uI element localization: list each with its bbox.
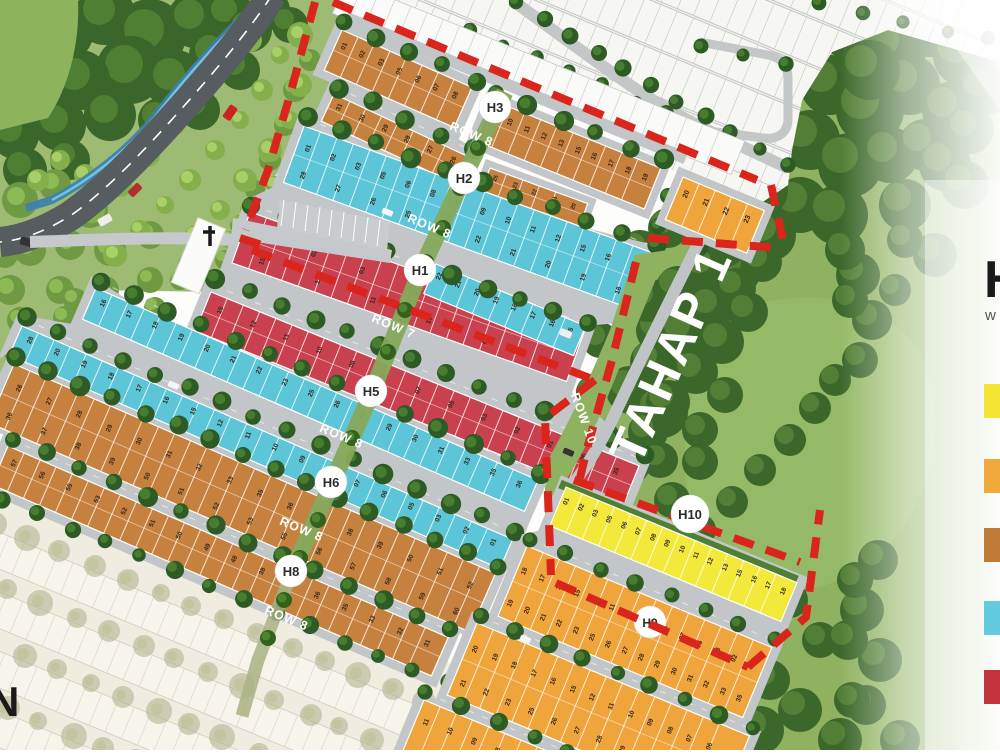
svg-text:w: w <box>984 307 996 324</box>
svg-text:H10: H10 <box>678 507 702 522</box>
svg-text:H2: H2 <box>456 171 473 186</box>
svg-text:H3: H3 <box>487 100 504 115</box>
svg-text:H5: H5 <box>363 384 380 399</box>
svg-text:H: H <box>984 251 1000 309</box>
svg-text:H1: H1 <box>412 263 429 278</box>
svg-text:H8: H8 <box>283 564 300 579</box>
svg-text:N: N <box>0 678 19 725</box>
svg-text:H6: H6 <box>323 475 340 490</box>
